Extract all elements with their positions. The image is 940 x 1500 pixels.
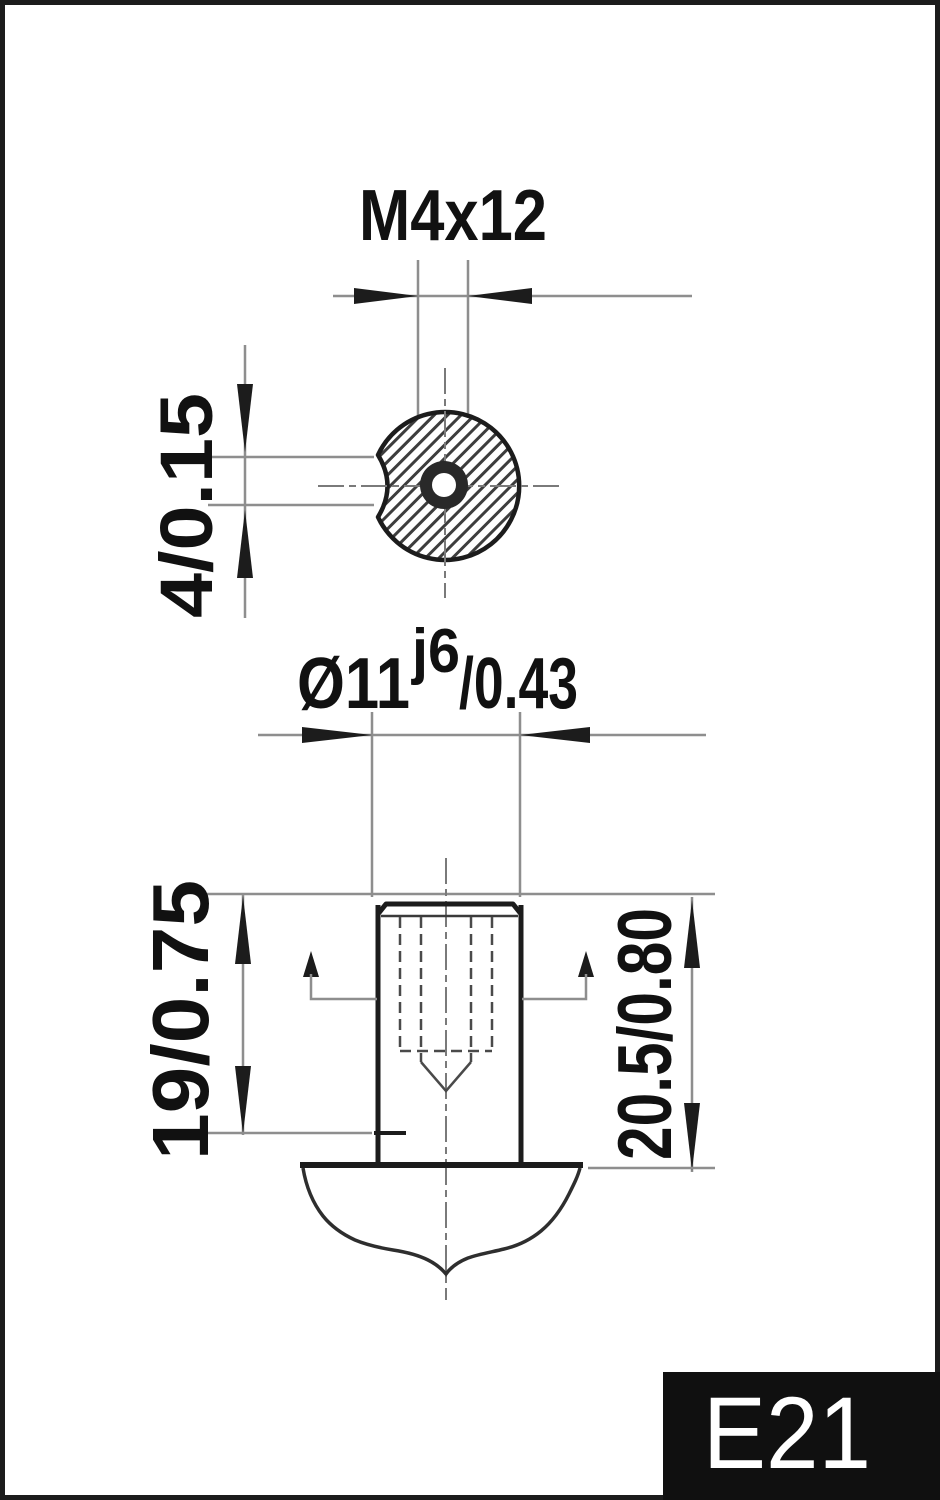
length-dim-label: 19/0.75 (136, 880, 225, 1160)
catalog-drawing-page: M4x12 4/0.15 Ø11 j6 /0.43 (0, 0, 940, 1500)
arrowhead (303, 951, 319, 977)
leader-line (522, 974, 586, 999)
thread-dim-label: M4x12 (359, 176, 547, 256)
length-dimension: 19/0.75 (136, 880, 406, 1160)
arrowhead (237, 384, 253, 452)
arrowhead (354, 288, 418, 304)
body-top-edge (378, 904, 521, 914)
top-view: M4x12 4/0.15 (145, 176, 692, 618)
pilot-hole (432, 473, 456, 497)
notch-dim-label: 4/0.15 (145, 393, 228, 618)
right-leader-arrow (522, 951, 594, 999)
left-leader-arrow (303, 951, 377, 999)
leader-line (311, 974, 377, 999)
arrowhead (578, 951, 594, 977)
arrowhead (302, 727, 372, 743)
part-code-badge: E21 (663, 1372, 940, 1500)
overall-length-dim-label: 20.5/0.80 (603, 908, 688, 1160)
thread-dimension: M4x12 (333, 176, 692, 418)
mounting-plate (300, 1165, 583, 1274)
diameter-dim-label-base: Ø11 (297, 644, 410, 724)
notch-dimension: 4/0.15 (145, 345, 374, 618)
part-code-label: E21 (703, 1376, 871, 1490)
overall-length-dimension: 20.5/0.80 (588, 897, 715, 1172)
arrowhead (468, 288, 532, 304)
technical-drawing: M4x12 4/0.15 Ø11 j6 /0.43 (0, 0, 940, 1500)
arrowhead (235, 896, 251, 964)
front-view: Ø11 j6 /0.43 (136, 617, 715, 1300)
arrowhead (520, 727, 590, 743)
diameter-dim-label-tolerance: /0.43 (459, 644, 578, 724)
diameter-dim-label-superscript: j6 (411, 617, 460, 686)
arrowhead (237, 510, 253, 578)
arrowhead (235, 1066, 251, 1134)
diameter-dimension: Ø11 j6 /0.43 (258, 617, 706, 897)
break-line (303, 1168, 580, 1274)
